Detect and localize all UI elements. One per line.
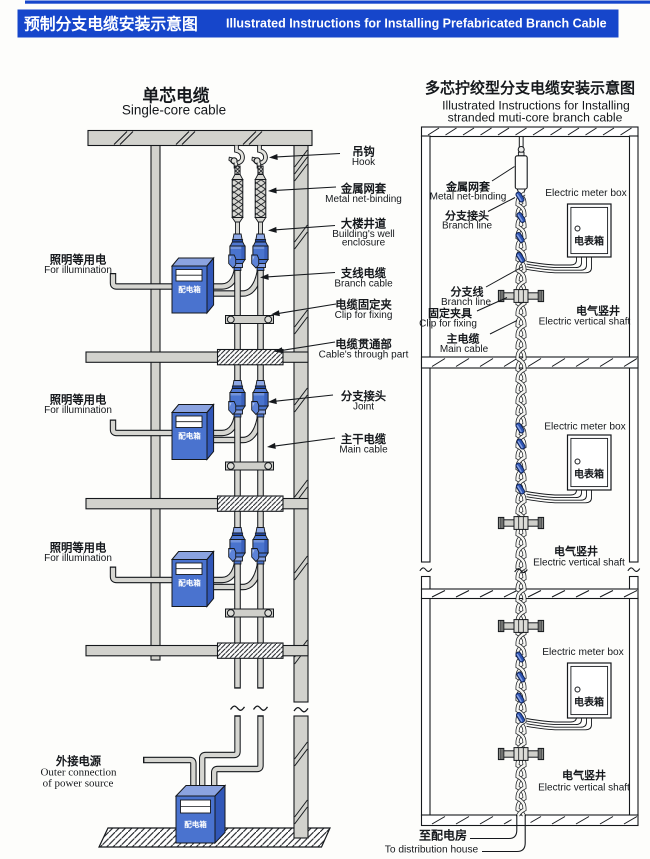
svg-text:For illumination: For illumination (44, 553, 112, 564)
svg-text:Cable's through part: Cable's through part (319, 349, 409, 360)
svg-text:enclosure: enclosure (342, 238, 386, 249)
svg-text:多芯拧绞型分支电缆安装示意图: 多芯拧绞型分支电缆安装示意图 (425, 79, 635, 97)
svg-text:Hook: Hook (352, 157, 376, 168)
svg-text:配电箱: 配电箱 (178, 284, 201, 294)
svg-text:电表箱: 电表箱 (574, 696, 604, 709)
svg-text:Clip for fixing: Clip for fixing (419, 318, 477, 329)
svg-text:电表箱: 电表箱 (574, 468, 604, 481)
svg-text:配电箱: 配电箱 (178, 578, 201, 588)
svg-text:To distribution house: To distribution house (385, 845, 479, 856)
svg-text:of power source: of power source (43, 778, 114, 790)
svg-text:For illumination: For illumination (44, 405, 112, 416)
svg-text:For illumination: For illumination (44, 265, 112, 276)
svg-text:至配电房: 至配电房 (419, 828, 467, 843)
svg-text:电气竖井: 电气竖井 (576, 304, 620, 318)
svg-text:电气竖井: 电气竖井 (562, 768, 606, 782)
svg-text:Electric vertical shaft: Electric vertical shaft (539, 317, 631, 328)
svg-text:stranded muti-core branch cabl: stranded muti-core branch cable (448, 111, 623, 125)
svg-text:配电箱: 配电箱 (184, 819, 207, 829)
svg-text:Main cable: Main cable (440, 344, 489, 355)
svg-text:Branch line: Branch line (441, 297, 491, 308)
svg-text:Joint: Joint (353, 401, 374, 412)
svg-text:Metal net-binding: Metal net-binding (325, 194, 402, 205)
svg-text:预制分支电缆安装示意图: 预制分支电缆安装示意图 (24, 15, 198, 34)
svg-text:电表箱: 电表箱 (574, 235, 604, 248)
svg-text:Electric meter box: Electric meter box (544, 422, 626, 433)
svg-text:Electric meter box: Electric meter box (545, 188, 627, 199)
svg-text:Main cable: Main cable (339, 444, 388, 455)
svg-text:电气竖井: 电气竖井 (554, 544, 598, 558)
svg-text:Illustrated Instructions for I: Illustrated Instructions for Installing … (226, 17, 607, 31)
svg-text:Clip for fixing: Clip for fixing (335, 310, 393, 321)
svg-text:Metal net-binding: Metal net-binding (430, 192, 507, 203)
svg-text:Electric vertical shaft: Electric vertical shaft (538, 783, 630, 794)
svg-text:Electric meter box: Electric meter box (542, 647, 624, 658)
svg-text:Branch cable: Branch cable (334, 278, 393, 289)
svg-text:配电箱: 配电箱 (178, 431, 201, 441)
svg-text:Single-core cable: Single-core cable (122, 103, 226, 118)
svg-text:Electric vertical shaft: Electric vertical shaft (533, 558, 625, 569)
svg-text:Branch line: Branch line (442, 220, 492, 231)
